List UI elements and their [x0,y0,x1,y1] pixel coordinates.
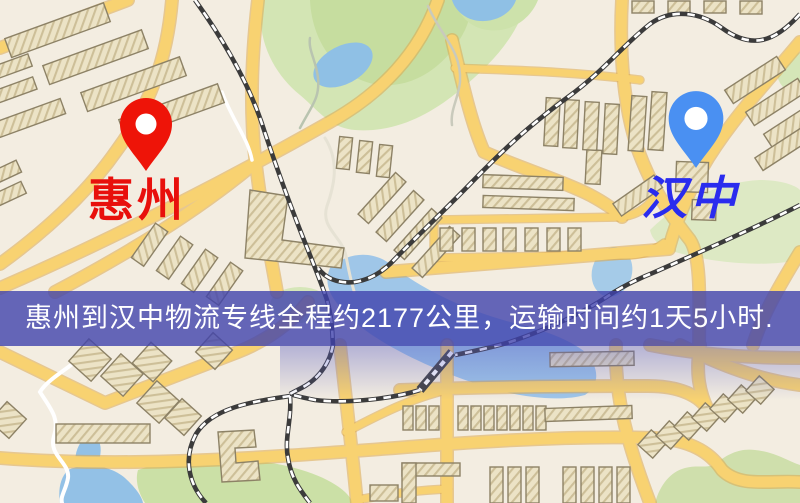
map-background [0,0,800,503]
origin-city-label: 惠州 [88,178,186,224]
destination-city-label: 汉中 [641,176,739,222]
map-canvas: 惠州 汉中 惠州到汉中物流专线全程约2177公里，运输时间约1天5小时. [0,0,800,503]
route-info-banner: 惠州到汉中物流专线全程约2177公里，运输时间约1天5小时. [0,291,800,346]
origin-pin-icon[interactable] [117,95,175,173]
destination-pin-icon[interactable] [665,88,727,170]
